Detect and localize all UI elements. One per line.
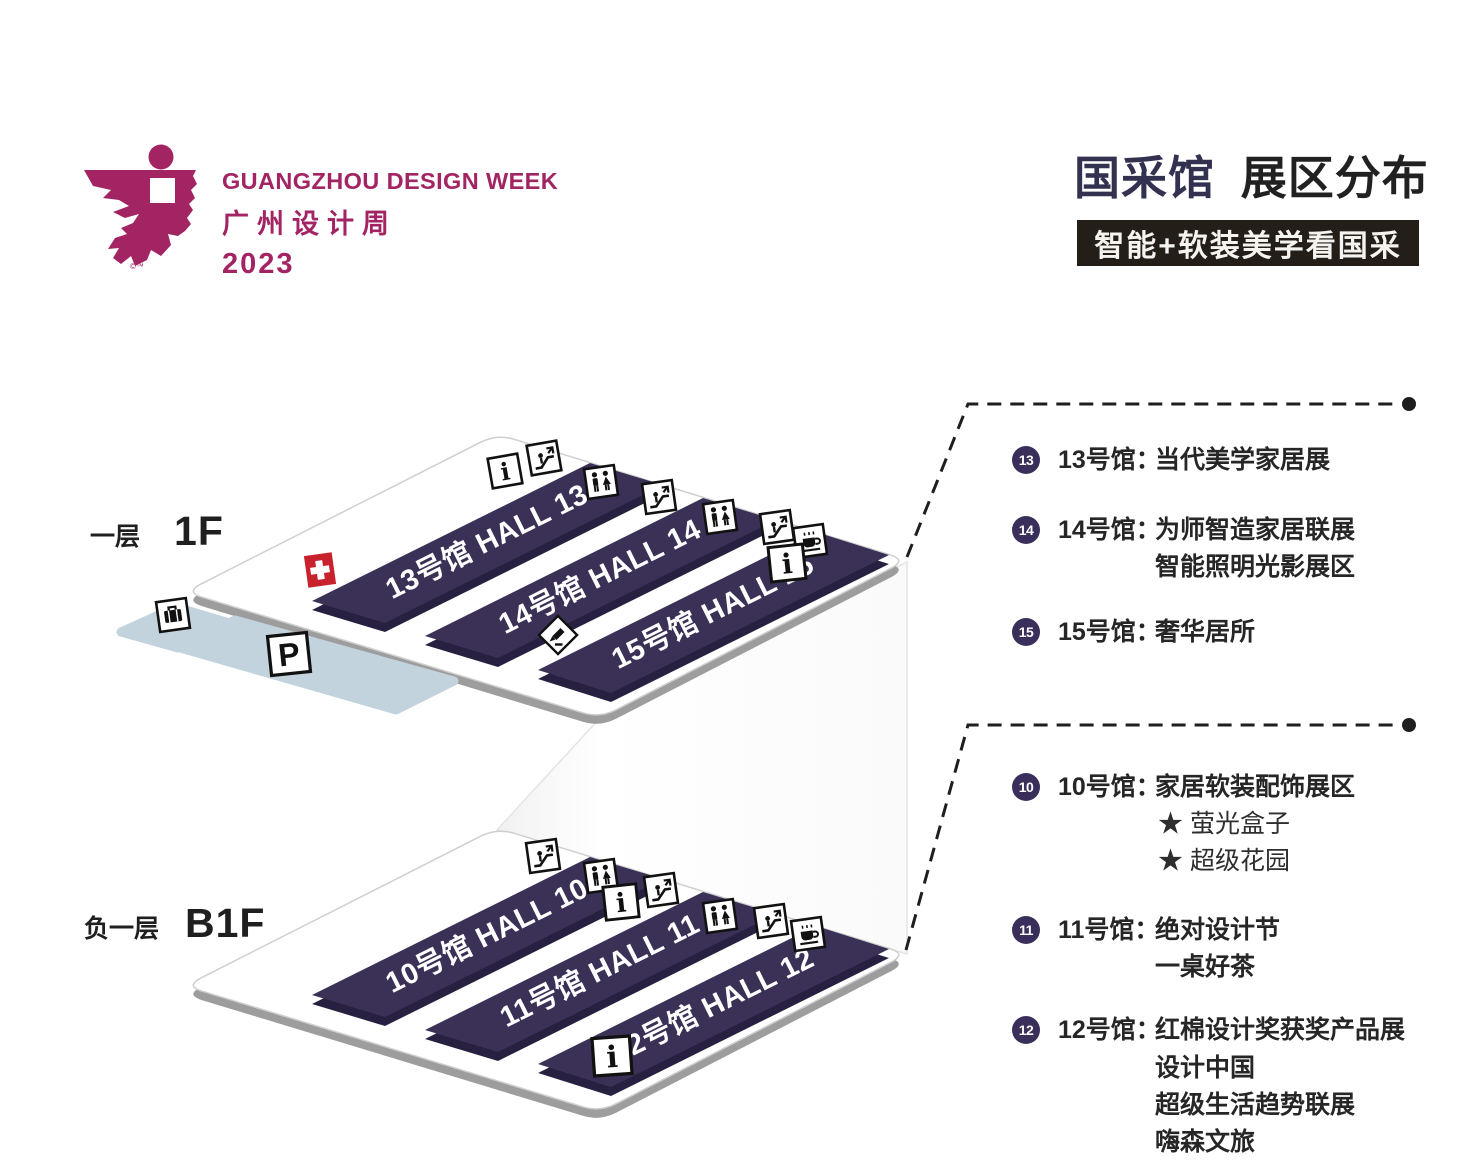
legend-line: 为师智造家居联展 [1155,516,1355,545]
restroom-icon [703,899,737,933]
page-title: 国采馆 展区分布 [1074,142,1420,208]
brand-name-en: GUANGZHOU DESIGN WEEK [222,168,552,195]
restroom-icon [584,465,618,499]
hall-13-badge: 13 [1012,446,1040,474]
restroom-icon [703,500,737,534]
hall-11-badge: 11 [1012,916,1040,944]
hall-15-badge: 15 [1012,618,1040,646]
subtitle-text: 智能+软装美学看国采 [1094,221,1402,265]
info-icon [488,454,523,489]
legend-line: 嗨森文旅 [1155,1128,1255,1157]
legend-item-hall-13: 13 13号馆： 当代美学家居展 [1012,446,1457,478]
legend-title: 13号馆： [1058,446,1161,475]
brand-year: 2023 [222,248,552,281]
connector-dot [1402,718,1416,732]
header: 国采馆 展区分布 智能+软装美学看国采 [1074,142,1420,266]
legend-line: 当代美学家居展 [1155,446,1330,475]
escalator-icon [527,441,562,476]
legend-line: ★ 超级花园 [1158,847,1290,876]
legend-item-hall-11: 11 11号馆： 绝对设计节 一桌好茶 [1012,916,1457,986]
legend-line: 红棉设计奖获奖产品展 [1155,1016,1405,1045]
luggage-icon [156,598,190,632]
legend-line: 奢华居所 [1155,618,1255,647]
page-title-rest: 展区分布 [1241,152,1429,204]
hall-12-badge: 12 [1012,1016,1040,1044]
hall-10-badge: 10 [1012,773,1040,801]
legend-line: 智能照明光影展区 [1155,553,1355,582]
escalator-icon [642,480,676,514]
gdw-logo: ©™ GUANGZHOU DESIGN WEEK 广州设计周 2023 [75,128,225,278]
floor-1f-cn: 一层 [90,517,140,553]
trademark-mark: ©™ [130,262,144,271]
floor-1f-code: 1F [174,508,224,555]
legend-item-hall-12: 12 12号馆： 红棉设计奖获奖产品展 设计中国 超级生活趋势联展 嗨森文旅 [1012,1016,1457,1160]
floor-label-b1f: 负一层 B1F [84,900,265,947]
legend-title: 11号馆： [1058,916,1159,945]
escalator-icon [760,510,794,544]
legend-line: 家居软装配饰展区 [1155,773,1355,802]
first-aid-icon [304,552,336,588]
legend-title: 14号馆： [1058,516,1161,545]
legend-line: 一桌好茶 [1155,953,1255,982]
floor-b1f-cn: 负一层 [84,909,159,945]
coffee-icon [791,917,825,951]
legend-line: 超级生活趋势联展 [1155,1091,1355,1120]
hall-14-badge: 14 [1012,516,1040,544]
legend-item-hall-15: 15 15号馆： 奢华居所 [1012,618,1457,650]
subtitle-banner: 智能+软装美学看国采 [1077,220,1419,266]
escalator-icon [526,839,560,873]
info-icon [768,544,806,582]
connector-dot [1402,397,1416,411]
escalator-icon [644,873,678,907]
legend-title: 12号馆： [1058,1016,1161,1045]
legend-line: 绝对设计节 [1155,916,1280,945]
info-icon [603,884,639,921]
legend-item-hall-14: 14 14号馆： 为师智造家居联展 智能照明光影展区 [1012,516,1457,586]
legend-line: ★ 萤光盒子 [1158,810,1290,839]
legend-line: 设计中国 [1155,1054,1255,1083]
info-icon [592,1036,632,1077]
brand-name-cn: 广州设计周 [222,202,552,241]
legend-title: 15号馆： [1058,618,1161,647]
parking-icon [268,633,311,676]
floor-b1f-code: B1F [185,900,265,947]
gdw-logo-mark: ©™ [75,128,225,278]
escalator-icon [754,904,788,938]
legend-item-hall-10: 10 10号馆： 家居软装配饰展区 ★ 萤光盒子 ★ 超级花园 [1012,773,1457,879]
floor-label-1f: 一层 1F [90,508,224,555]
page-title-hall: 国采馆 [1074,152,1215,204]
poster: i [0,0,1457,1160]
legend-title: 10号馆： [1058,773,1161,802]
